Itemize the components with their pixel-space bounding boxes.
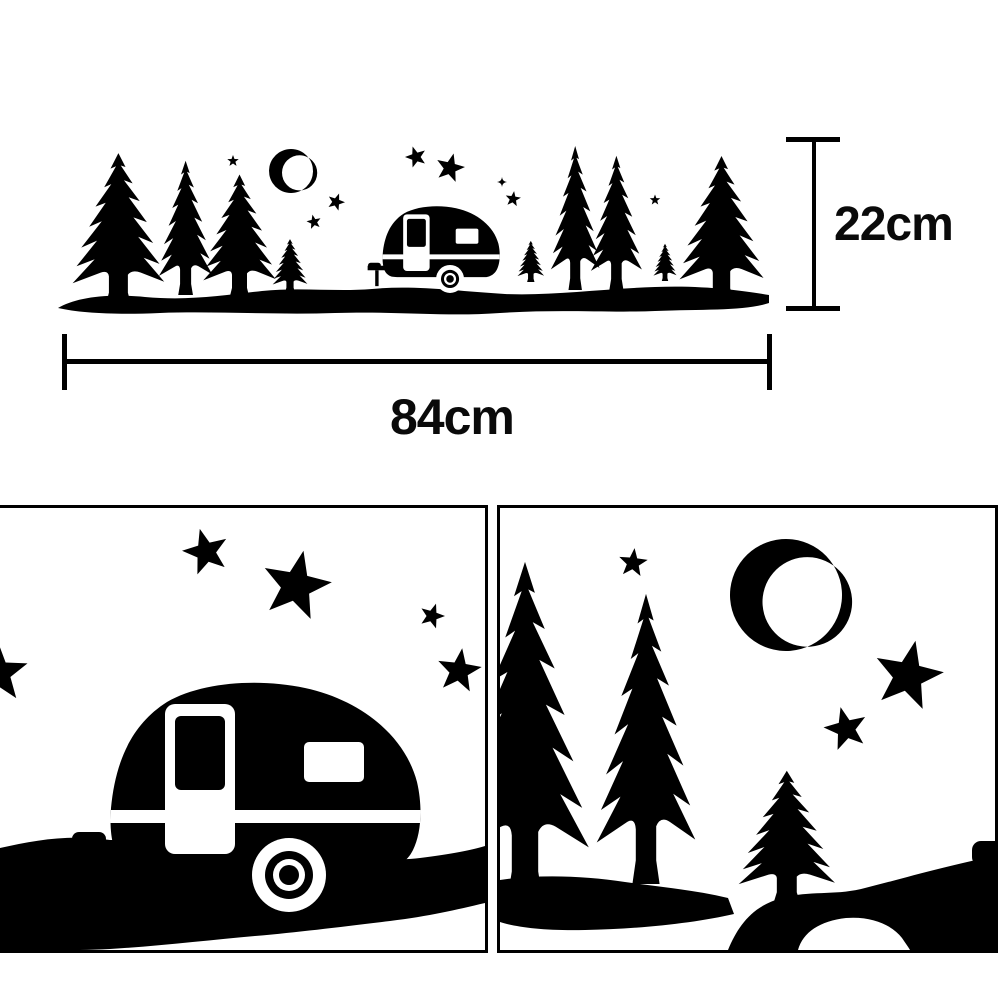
star-icon [505,190,522,206]
pine-tree-icon [159,161,212,295]
pine-tree-icon [591,156,642,290]
star-icon [178,523,233,577]
detail-panel-trees-moon [497,505,998,953]
star-icon [325,191,347,212]
star-icon [868,634,949,712]
camper-trailer-icon [368,206,503,293]
height-label: 22cm [834,201,953,249]
pine-tree-icon [653,244,676,281]
star-icon [0,642,28,698]
crescent-moon-icon [265,145,321,198]
star-icon [650,195,660,205]
star-icon [433,150,467,183]
pine-tree-icon [739,771,835,903]
star-icon [227,155,238,166]
height-dimension-cap-bottom [786,306,840,311]
star-icon [256,544,337,622]
star-icon [618,547,649,577]
width-label: 84cm [390,392,514,442]
four-point-star-icon [497,177,507,187]
width-dimension-cap-right [767,334,772,390]
pine-tree-icon [551,146,600,290]
ground-silhouette [500,876,734,930]
star-icon [820,702,871,752]
product-image: 22cm 84cm [0,0,1000,1000]
star-icon [403,143,429,168]
trees-moon-detail-scene [500,508,995,950]
width-dimension-bar [64,359,770,364]
star-icon [435,645,484,692]
camper-detail-scene [0,508,485,950]
star-icon [417,600,448,630]
crescent-moon-icon [715,524,867,669]
decal-scene [50,130,780,325]
detail-panel-camper [0,505,488,953]
star-icon [305,213,322,229]
pine-tree-icon [73,153,165,305]
pine-tree-icon [273,239,308,292]
pine-tree-icon [597,594,696,884]
pine-tree-icon [517,241,544,282]
pine-tree-icon [203,175,276,298]
ground-silhouette [58,287,769,315]
height-dimension-bar [812,139,816,309]
pine-tree-icon [679,156,763,300]
pine-tree-icon [500,562,589,899]
